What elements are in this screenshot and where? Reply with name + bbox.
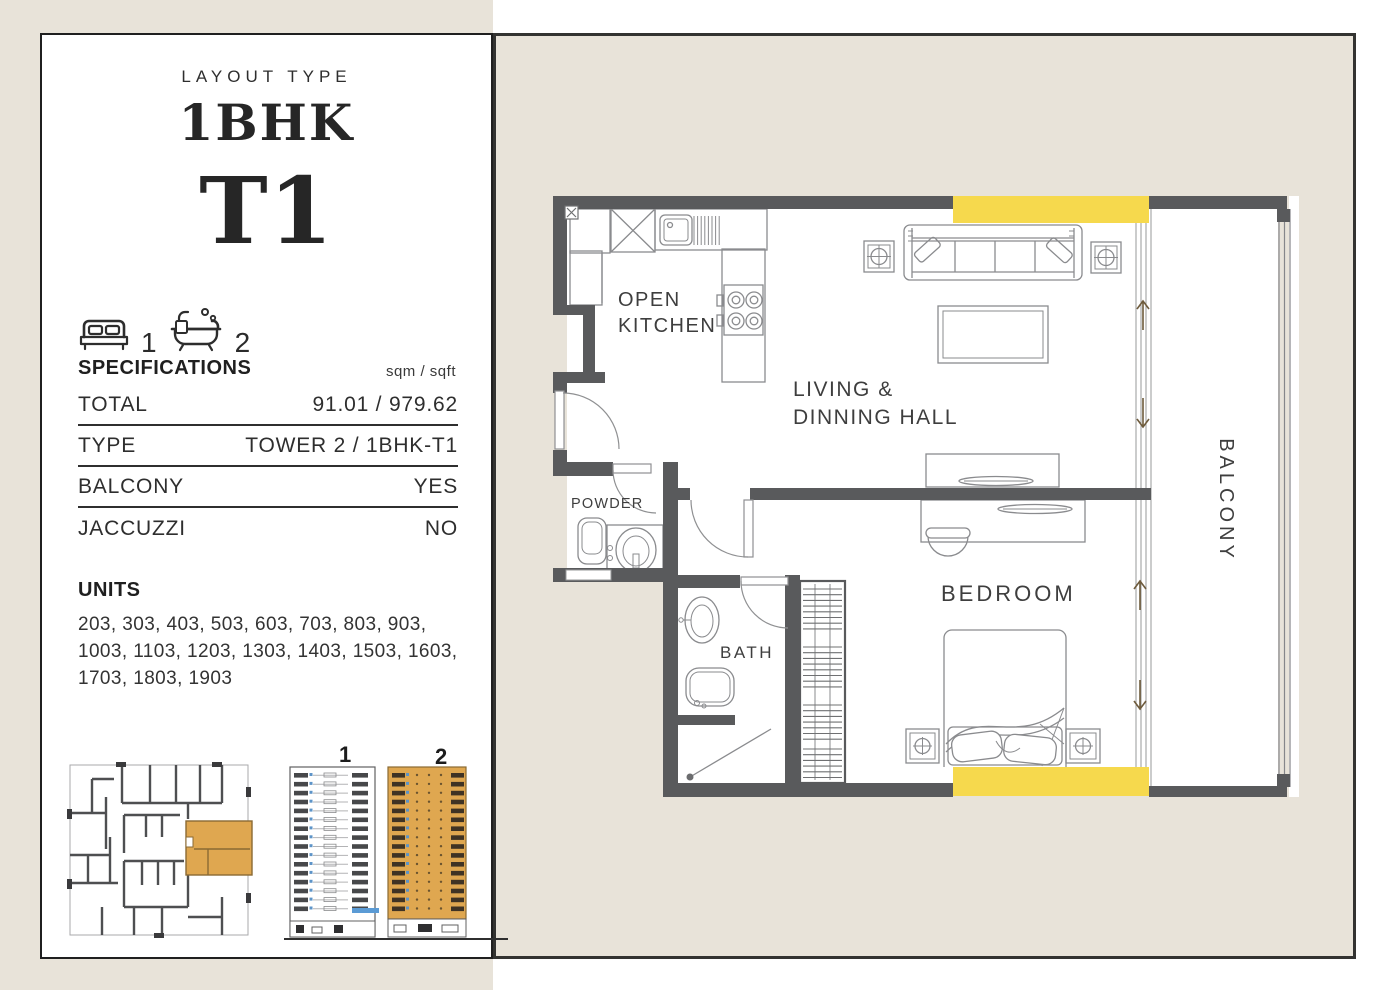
tower1-label: 1 bbox=[339, 745, 351, 767]
units-line: 1003, 1103, 1203, 1303, 1403, 1503, 1603… bbox=[78, 638, 478, 665]
floor-plan: OPEN KITCHEN LIVING & DINNING HALL POWDE… bbox=[493, 33, 1356, 959]
balcony-label: BALCONY bbox=[1215, 438, 1237, 562]
spec-row-jaccuzzi: JACCUZZI NO bbox=[78, 508, 458, 549]
unit-note: sqm / sqft bbox=[386, 363, 456, 380]
units-line: 203, 303, 403, 503, 603, 703, 803, 903, bbox=[78, 611, 478, 638]
bedroom-label: BEDROOM bbox=[941, 581, 1076, 606]
spec-value: YES bbox=[414, 475, 458, 499]
specifications-heading: SPECIFICATIONS bbox=[78, 357, 251, 380]
bath-count: 2 bbox=[235, 329, 251, 358]
bed-count: 1 bbox=[141, 329, 157, 358]
units-line: 1703, 1803, 1903 bbox=[78, 665, 478, 692]
spec-label: BALCONY bbox=[78, 475, 184, 499]
side-table-right bbox=[1091, 242, 1121, 273]
card-title: 1BHK bbox=[42, 93, 491, 152]
keyplan-thumbnail bbox=[62, 757, 262, 967]
spec-label: TOTAL bbox=[78, 393, 148, 417]
bed-icon bbox=[78, 313, 130, 358]
units-heading: UNITS bbox=[78, 579, 141, 602]
layout-type-label: LAYOUT TYPE bbox=[42, 67, 491, 87]
wardrobe bbox=[800, 581, 845, 783]
spec-label: TYPE bbox=[78, 434, 136, 458]
units-list: 203, 303, 403, 503, 603, 703, 803, 903, … bbox=[78, 611, 478, 692]
tower2-label: 2 bbox=[435, 745, 447, 769]
spec-row-balcony: BALCONY YES bbox=[78, 467, 458, 508]
spec-value: 91.01 / 979.62 bbox=[313, 393, 459, 417]
spec-row-total: TOTAL 91.01 / 979.62 bbox=[78, 385, 458, 426]
tower1-elevation bbox=[290, 767, 379, 937]
powder-label: POWDER bbox=[571, 496, 643, 512]
spec-table: TOTAL 91.01 / 979.62 TYPE TOWER 2 / 1BHK… bbox=[78, 385, 458, 549]
tower-elevations: 1 2 bbox=[282, 745, 512, 980]
kitchen-label: OPEN bbox=[618, 289, 681, 311]
corner-x-icon bbox=[565, 206, 578, 219]
card-subtitle: T1 bbox=[42, 157, 491, 265]
kitchen-label-2: KITCHEN bbox=[618, 315, 716, 337]
spec-row-type: TYPE TOWER 2 / 1BHK-T1 bbox=[78, 426, 458, 467]
info-card: LAYOUT TYPE 1BHK T1 1 bbox=[40, 33, 493, 959]
living-label-2: DINNING HALL bbox=[793, 406, 958, 429]
spec-value: NO bbox=[425, 517, 458, 541]
amenities-row: 1 2 bbox=[78, 305, 250, 358]
bath-label: BATH bbox=[720, 643, 774, 662]
balcony-window bbox=[1279, 209, 1290, 787]
living-label: LIVING & bbox=[793, 378, 894, 401]
spec-label: JACCUZZI bbox=[78, 517, 186, 541]
bath-icon bbox=[168, 305, 224, 358]
powder-window bbox=[566, 570, 611, 580]
keyplan-highlighted-unit bbox=[186, 821, 252, 875]
spec-value: TOWER 2 / 1BHK-T1 bbox=[245, 434, 458, 458]
tower2-elevation bbox=[388, 767, 466, 937]
side-table-left bbox=[864, 241, 894, 272]
